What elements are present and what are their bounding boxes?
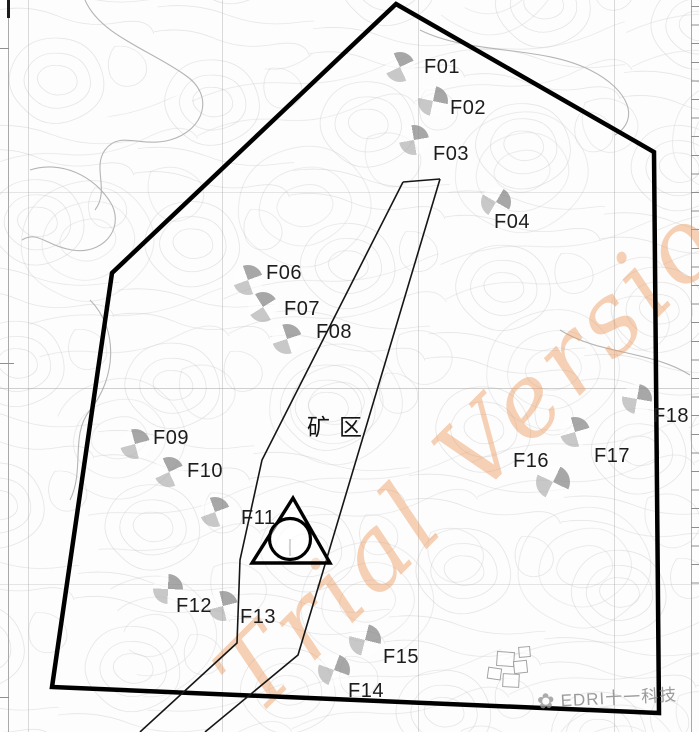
building-footprints — [487, 646, 530, 687]
topographic-map: F01 F02 F03 F04 F06 F07 F08 F09 F10 F11 … — [0, 0, 699, 732]
turbine-label: F08 — [316, 322, 352, 342]
turbine-label: F04 — [494, 212, 530, 232]
turbine-label: F02 — [450, 98, 486, 118]
turbine-label: F12 — [176, 596, 212, 616]
turbine-label: F10 — [187, 461, 223, 481]
line-work-layer — [0, 0, 699, 732]
mine-boundary-outline — [52, 4, 659, 713]
turbine-label: F18 — [653, 406, 689, 426]
turbine-label: F07 — [284, 299, 320, 319]
turbine-label: F01 — [424, 57, 460, 77]
turbine-label: F14 — [348, 681, 384, 701]
turbine-label: F06 — [266, 263, 302, 283]
turbine-label: F15 — [383, 647, 419, 667]
turbine-label: F16 — [513, 451, 549, 471]
mining-area-label: 矿区 — [307, 415, 371, 439]
turbine-label: F09 — [153, 428, 189, 448]
edri-logo-icon: ✿ — [537, 691, 556, 713]
turbine-label: F17 — [594, 446, 630, 466]
turbine-label: F11 — [241, 508, 275, 528]
turbine-label: F03 — [433, 144, 469, 164]
turbine-label: F13 — [240, 607, 276, 627]
